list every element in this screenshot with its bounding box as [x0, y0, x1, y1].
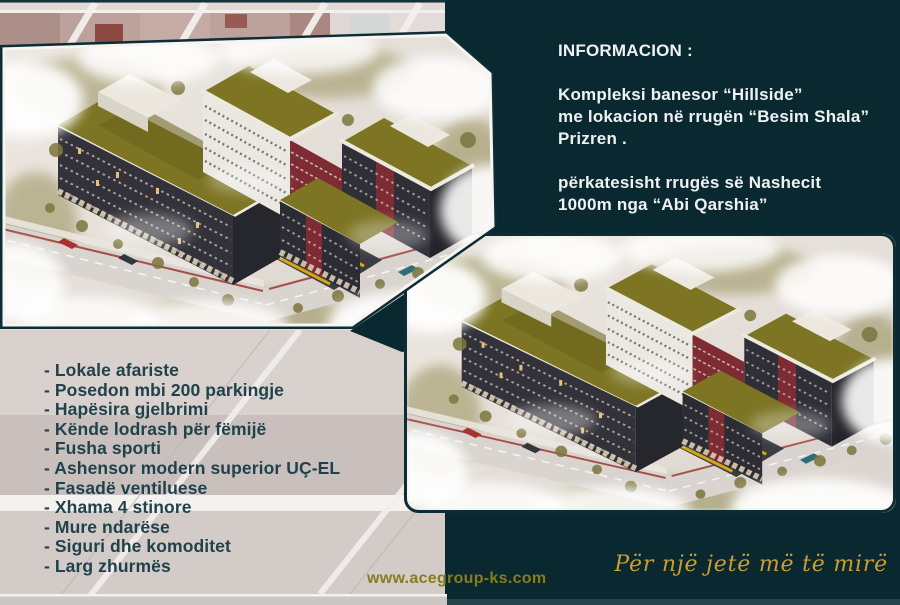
feature-item: - Fasadë ventiluese — [44, 479, 340, 499]
feature-item: - Larg zhurmës — [44, 557, 340, 577]
feature-item: - Lokale afariste — [44, 361, 340, 381]
feature-item: - Kënde lodrash për fëmijë — [44, 420, 340, 440]
feature-item: - Ashensor modern superior UÇ-EL — [44, 459, 340, 479]
info-line: 1000m nga “Abi Qarshia” — [558, 194, 869, 216]
info-panel: INFORMACION : Kompleksi banesor “Hillsid… — [558, 40, 869, 238]
feature-list: - Lokale afariste - Posedon mbi 200 park… — [44, 361, 340, 577]
info-paragraph-distance: përkatesisht rrugës së Nashecit 1000m ng… — [558, 172, 869, 216]
info-line: me lokacion në rrugën “Besim Shala” — [558, 106, 869, 128]
info-title: INFORMACION : — [558, 40, 869, 62]
bottom-strip — [0, 597, 447, 605]
info-paragraph-location: Kompleksi banesor “Hillside” me lokacion… — [558, 84, 869, 150]
website-url: www.acegroup-ks.com — [367, 570, 546, 588]
bottom-strip-line — [0, 594, 447, 597]
feature-item: - Fusha sporti — [44, 439, 340, 459]
top-hairline — [0, 0, 445, 3]
info-line: Prizren . — [558, 128, 869, 150]
feature-item: - Mure ndarëse — [44, 518, 340, 538]
feature-item: - Xhama 4 stinore — [44, 498, 340, 518]
brochure-page: INFORMACION : Kompleksi banesor “Hillsid… — [0, 0, 900, 605]
info-line: Kompleksi banesor “Hillside” — [558, 84, 869, 106]
feature-item: - Posedon mbi 200 parkingje — [44, 381, 340, 401]
info-line: përkatesisht rrugës së Nashecit — [558, 172, 869, 194]
slogan-text: Për një jetë më të mirë — [614, 552, 888, 577]
feature-item: - Hapësira gjelbrimi — [44, 400, 340, 420]
feature-item: - Siguri dhe komoditet — [44, 537, 340, 557]
